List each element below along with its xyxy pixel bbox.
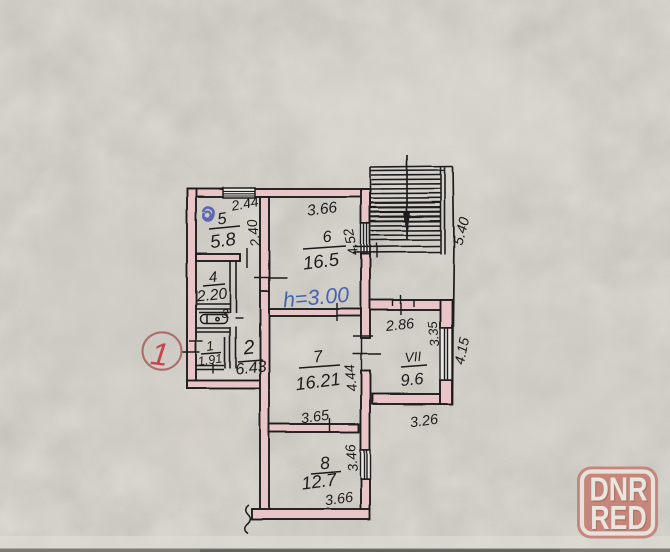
svg-text:VII: VII [404, 349, 422, 365]
svg-text:2: 2 [241, 336, 255, 359]
svg-text:2.86: 2.86 [384, 316, 416, 335]
svg-text:9.6: 9.6 [400, 370, 425, 390]
svg-text:4: 4 [208, 269, 218, 287]
svg-text:16.5: 16.5 [302, 248, 341, 273]
svg-text:3.46: 3.46 [342, 443, 361, 472]
svg-text:3: 3 [222, 307, 229, 321]
svg-text:3.35: 3.35 [425, 320, 443, 347]
svg-text:RED: RED [590, 500, 647, 536]
svg-text:2.20: 2.20 [195, 285, 228, 305]
svg-text:4.44: 4.44 [341, 363, 360, 392]
svg-text:5.8: 5.8 [209, 228, 238, 252]
